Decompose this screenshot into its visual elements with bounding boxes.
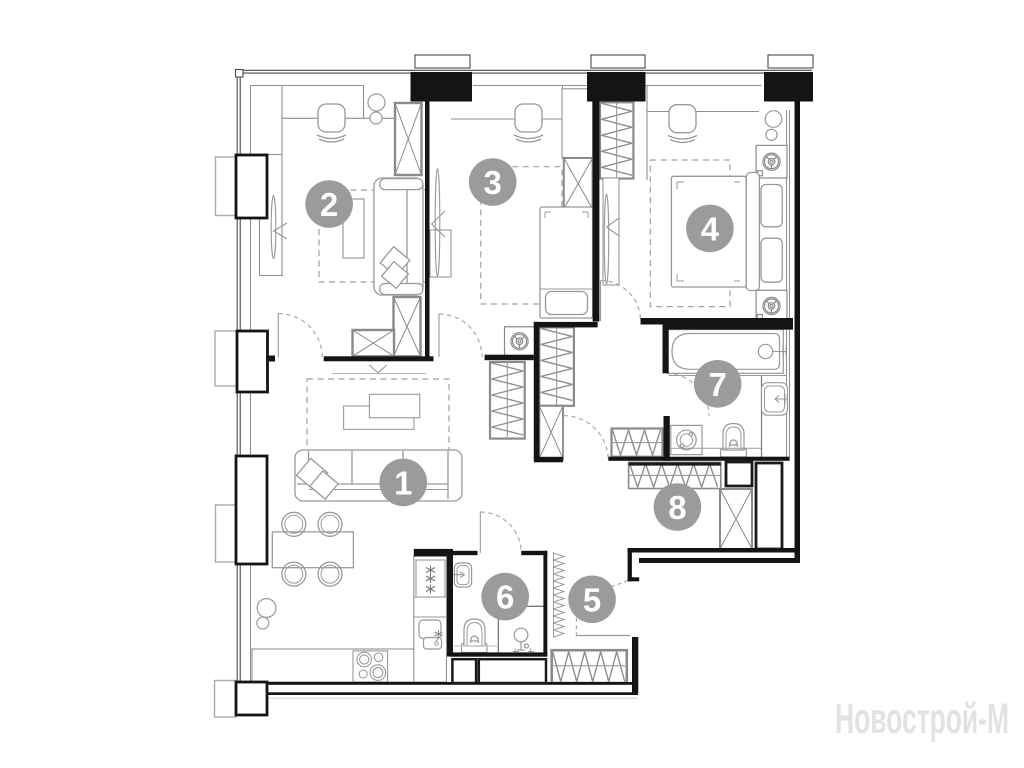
svg-text:2: 2	[320, 186, 338, 223]
svg-text:Новострой-М: Новострой-М	[835, 695, 1009, 743]
svg-text:7: 7	[709, 366, 727, 403]
svg-text:6: 6	[496, 579, 514, 616]
svg-text:8: 8	[668, 489, 686, 526]
svg-text:5: 5	[583, 581, 601, 618]
svg-text:4: 4	[701, 210, 720, 247]
svg-text:1: 1	[394, 464, 412, 501]
svg-text:3: 3	[484, 164, 502, 201]
